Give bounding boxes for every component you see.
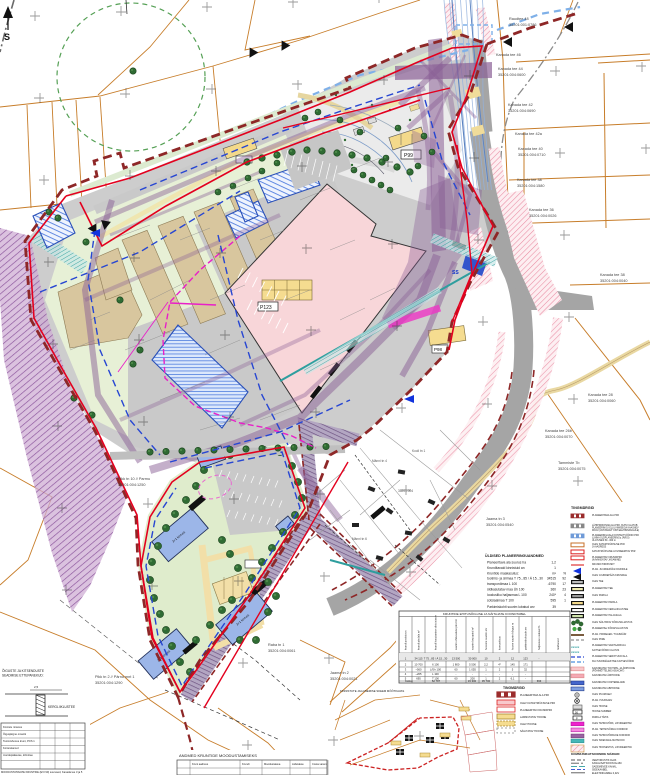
svg-text:123: 123 <box>523 657 528 661</box>
svg-text:KAVANDATAV ABIHOONE: KAVANDATAV ABIHOONE <box>592 687 620 690</box>
svg-text:35201:004:0540: 35201:004:0540 <box>486 523 513 527</box>
svg-text:loodusliku haljasmaa L 100: loodusliku haljasmaa L 100 <box>487 593 527 597</box>
svg-text:PLANEERITAV KERGLIIKLUSTEE: PLANEERITAV KERGLIIKLUSTEE <box>592 608 629 611</box>
svg-text:PLANEERITAV HALJASALA: PLANEERITAV HALJASALA <box>592 614 622 617</box>
svg-text:xxxxx: xxxxx <box>571 650 580 654</box>
svg-text:1,2: 1,2 <box>551 561 556 565</box>
svg-text:145: 145 <box>510 663 515 667</box>
svg-text:35201:004:1250: 35201:004:1250 <box>118 483 145 487</box>
svg-text:1: 1 <box>554 566 556 570</box>
svg-text:ÜLDISED PLANEERINGUANDMED: ÜLDISED PLANEERINGUANDMED <box>485 553 544 558</box>
svg-text:92: 92 <box>562 577 566 581</box>
svg-text:PLAN. PUURKAEV: PLAN. PUURKAEV <box>592 699 613 702</box>
svg-text:P98: P98 <box>434 347 443 352</box>
svg-text:Pikk tn 2 // Pärnu mnt 1: Pikk tn 2 // Pärnu mnt 1 <box>95 675 134 679</box>
svg-text:695: 695 <box>416 677 421 681</box>
svg-text:Costa varem: Costa varem <box>312 762 327 766</box>
svg-text:PLAN. TEHNOVÕRGU KORIDOR: PLAN. TEHNOVÕRGU KORIDOR <box>592 728 628 731</box>
svg-text:KRUNDI PIIRIPUNKT: KRUNDI PIIRIPUNKT <box>592 564 615 566</box>
svg-text:PLANEERITAV KRUNDIPIIR: PLANEERITAV KRUNDIPIIR <box>592 556 622 559</box>
svg-text:PLANEERITAV KRUNDIPIIR: PLANEERITAV KRUNDIPIIR <box>520 709 552 712</box>
svg-text:4*: 4* <box>498 663 501 667</box>
svg-text:34 115: 34 115 <box>414 657 423 661</box>
svg-text:Kanada tee 36: Kanada tee 36 <box>529 208 554 212</box>
svg-text:35201:004:1290: 35201:004:1290 <box>95 681 122 685</box>
svg-text:PLANEERINGU ELLUVIIMISEGA KAAS: PLANEERINGU ELLUVIIMISEGA KAASNEV <box>592 526 639 529</box>
svg-text:10: 10 <box>485 657 488 661</box>
svg-text:OLEV SÄILITATAV KÕRGHALJASTUS: OLEV SÄILITATAV KÕRGHALJASTUS <box>592 621 633 624</box>
svg-text:Männi tn 4: Männi tn 4 <box>372 459 387 463</box>
svg-text:KOMMUNIKATSIOONIDE MÄRGID:: KOMMUNIKATSIOONIDE MÄRGID: <box>571 752 620 756</box>
svg-text:Kanada tee 44: Kanada tee 44 <box>498 67 523 71</box>
svg-text:PLANEERITAV PARKLA: PLANEERITAV PARKLA <box>592 601 618 604</box>
svg-text:LAMMUTATAV HOONE: LAMMUTATAV HOONE <box>520 716 547 719</box>
svg-text:(KAVANDATAV JAGAMINE): (KAVANDATAV JAGAMINE) <box>592 558 621 561</box>
svg-text:OLEV SIDEKANALISATSIOON: OLEV SIDEKANALISATSIOON <box>592 739 625 742</box>
svg-text:Jaama tn 2: Jaama tn 2 <box>330 671 349 675</box>
svg-text:595: 595 <box>550 598 556 602</box>
svg-text:%: % <box>563 571 566 575</box>
svg-text:35201:004:0070: 35201:004:0070 <box>545 435 572 439</box>
svg-text:-: - <box>525 673 526 676</box>
svg-text:Kanada tee 46: Kanada tee 46 <box>496 53 521 57</box>
svg-text:L 100: L 100 <box>432 672 439 676</box>
svg-text:sotsiaalmaa T 100: sotsiaalmaa T 100 <box>487 598 514 602</box>
svg-text:60: 60 <box>455 668 458 672</box>
svg-text:693: 693 <box>537 679 542 683</box>
svg-text:SEADMISE ETTEPANEKUD:: SEADMISE ETTEPANEKUD: <box>2 674 44 678</box>
svg-text:hoonete suurim arv: hoonete suurim arv <box>484 627 488 650</box>
svg-text:Männi tn 6: Männi tn 6 <box>352 537 367 541</box>
svg-text:suurim brutopind m²: suurim brutopind m² <box>471 627 475 650</box>
svg-text:-: - <box>525 678 526 681</box>
svg-text:hoone suurim kõrgus m: hoone suurim kõrgus m <box>511 623 515 650</box>
svg-text:krundi pindala m²: krundi pindala m² <box>417 630 421 650</box>
svg-text:Krundi: Krundi <box>242 762 250 766</box>
svg-text:Jaama tn 3: Jaama tn 3 <box>486 517 505 521</box>
svg-text:OLEV KATASTRIÜKSUSE PIIR: OLEV KATASTRIÜKSUSE PIIR <box>520 702 555 705</box>
svg-text:Planeeritava ala suurus ha: Planeeritava ala suurus ha <box>487 561 526 565</box>
svg-text:KERGLIIKLUSTEE: KERGLIIKLUSTEE <box>48 705 75 709</box>
svg-text:35201:004:0690: 35201:004:0690 <box>508 109 535 113</box>
svg-text:KAITSEVÖÖNDI ULATUS: KAITSEVÖÖNDI ULATUS <box>592 649 620 652</box>
svg-text:KAVANDATAV TOOTMIS- JA ÄRIHOON: KAVANDATAV TOOTMIS- JA ÄRIHOONE <box>592 667 635 670</box>
svg-text:360: 360 <box>550 588 556 592</box>
svg-text:10 700: 10 700 <box>414 663 423 667</box>
svg-text:PLANEERITAV SANITAARKUJA: PLANEERITAV SANITAARKUJA <box>592 644 626 647</box>
svg-text:krundi kasutamise sihtotstarve: krundi kasutamise sihtotstarve <box>434 615 438 650</box>
svg-text:Tammiste 7b: Tammiste 7b <box>558 461 580 465</box>
svg-text:OLEV TEE: OLEV TEE <box>592 581 604 583</box>
svg-text:-: - <box>539 658 540 661</box>
svg-text:32: 32 <box>524 668 527 672</box>
svg-text:-: - <box>512 673 513 676</box>
svg-text:Kanada tee 38: Kanada tee 38 <box>517 178 542 182</box>
svg-text:ULATUSES 50...300 m: ULATUSES 50...300 m <box>592 539 616 542</box>
svg-text:Kanada tee 40: Kanada tee 40 <box>518 147 543 151</box>
svg-text:OLEV PUURKAEV: OLEV PUURKAEV <box>592 693 612 696</box>
svg-text:xxxxx: xxxxx <box>571 645 580 649</box>
svg-text:1: 1 <box>564 598 566 602</box>
svg-text:12: 12 <box>511 657 514 661</box>
svg-text:Pikk tn 10 // Parmu: Pikk tn 10 // Parmu <box>118 477 150 481</box>
svg-text:-: - <box>472 673 473 676</box>
svg-text:PLANEERINGUALA KONTAKTVÖÖNDI P: PLANEERINGUALA KONTAKTVÖÖNDI PIIR <box>592 534 639 537</box>
svg-text:PLAN. PIIRDEAED / TUGIMÜÜR: PLAN. PIIRDEAED / TUGIMÜÜR <box>592 633 627 636</box>
svg-text:Kooli tn 1: Kooli tn 1 <box>412 449 426 453</box>
svg-text:T 75...85 / Ä 15...30: T 75...85 / Ä 15...30 <box>424 657 448 661</box>
svg-text:35201:004:0040: 35201:004:0040 <box>600 279 627 283</box>
svg-text:Kanada tee 42: Kanada tee 42 <box>508 103 533 107</box>
svg-text:1 800: 1 800 <box>453 663 460 667</box>
svg-text:35201:004: 35201:004 <box>398 489 413 493</box>
svg-text:SÄILITATAV HOONE: SÄILITATAV HOONE <box>520 730 544 733</box>
svg-text:2,2: 2,2 <box>484 663 488 667</box>
svg-text:-: - <box>456 673 457 676</box>
svg-text:-: - <box>499 673 500 676</box>
svg-text:OLEV HOONE: OLEV HOONE <box>592 706 608 708</box>
svg-text:haljastuse osakaal %: haljastuse osakaal % <box>537 625 541 650</box>
svg-text:35201:004:0061: 35201:004:0061 <box>268 649 295 653</box>
svg-text:35201:004:0075: 35201:004:0075 <box>558 467 585 471</box>
svg-text:Parkimiskohti suurim lubatud a: Parkimiskohti suurim lubatud arv <box>487 605 535 609</box>
svg-text:S: S <box>4 32 10 42</box>
svg-text:KAVANDATAV KORTERELAMU: KAVANDATAV KORTERELAMU <box>592 681 625 684</box>
svg-text:52 787: 52 787 <box>432 679 441 683</box>
svg-text:KATASTRIÜKSUSE LIKVIDEERITAV P: KATASTRIÜKSUSE LIKVIDEERITAV PIIR <box>592 550 636 553</box>
svg-text:35201:004:0021: 35201:004:0021 <box>330 677 357 681</box>
svg-text:Kanada tee 38: Kanada tee 38 <box>600 273 625 277</box>
svg-text:KULTUURIMÄLESTISE KAITSEVÖÖND: KULTUURIMÄLESTISE KAITSEVÖÖND <box>592 660 634 663</box>
svg-text:34515: 34515 <box>547 577 556 581</box>
svg-text:60: 60 <box>455 677 458 681</box>
svg-text:PARKLA TÄHIS: PARKLA TÄHIS <box>592 716 609 719</box>
svg-text:OLEV KATASTRIÜKSUSE PIIR: OLEV KATASTRIÜKSUSE PIIR <box>592 543 625 546</box>
svg-text:L/Üh 100: L/Üh 100 <box>430 668 441 672</box>
svg-text:KINNISTUTE JAGUNEMISE SKEEM MÕ: KINNISTUTE JAGUNEMISE SKEEM MÕÕTKAVAS <box>340 688 404 693</box>
svg-text:suurim ehitusalune pind m²: suurim ehitusalune pind m² <box>454 619 458 650</box>
svg-text:Liidetakse: Liidetakse <box>292 762 304 766</box>
svg-text:Tootmishoone krunt, POS 1: Tootmishoone krunt, POS 1 <box>3 739 35 743</box>
svg-text:PLANEERITAV TEE: PLANEERITAV TEE <box>592 587 613 590</box>
svg-text:5 500: 5 500 <box>469 663 476 667</box>
svg-text:171: 171 <box>523 663 528 667</box>
svg-text:(LINNA ÜLDPLANEERINGu JÄRGI): (LINNA ÜLDPLANEERINGu JÄRGI) <box>592 536 630 539</box>
svg-text:15 300: 15 300 <box>468 679 477 683</box>
svg-text:240*: 240* <box>549 593 557 597</box>
svg-text:23: 23 <box>562 588 566 592</box>
svg-text:Krunt aadress: Krunt aadress <box>192 762 209 766</box>
svg-text:OLEV TEHNOVÕRKUDE KORIDOR: OLEV TEHNOVÕRKUDE KORIDOR <box>592 734 630 737</box>
svg-text:OLEV PARKLA: OLEV PARKLA <box>592 594 608 597</box>
svg-text:~205: ~205 <box>415 672 422 676</box>
svg-text:korruselisus: korruselisus <box>498 635 502 650</box>
svg-text:JA AADRESS: JA AADRESS <box>592 545 607 548</box>
svg-text:PLANEERITAV SERVITUUDI ALA: PLANEERITAV SERVITUUDI ALA <box>592 655 628 658</box>
svg-text:MÕJU (VASTAVALT KSH EELHINNANG: MÕJU (VASTAVALT KSH EELHINNANGULE) <box>592 529 639 532</box>
svg-text:Kinnistu nimetus: Kinnistu nimetus <box>3 725 23 729</box>
svg-text:30 000: 30 000 <box>468 657 477 661</box>
svg-text:PLAN. JUURDEPÄÄS KRUNDILE: PLAN. JUURDEPÄÄS KRUNDILE <box>592 568 628 571</box>
svg-text:35201:004:1580: 35201:004:1580 <box>517 184 544 188</box>
svg-text:HOONE NUMBER: HOONE NUMBER <box>592 711 612 713</box>
svg-text:35201:004:0600: 35201:004:0600 <box>498 73 525 77</box>
svg-text:P: P <box>576 716 578 720</box>
svg-text:4: 4 <box>564 593 566 597</box>
svg-text:35 700: 35 700 <box>482 679 491 683</box>
svg-text:märkused: märkused <box>556 638 560 650</box>
svg-text:13 500: 13 500 <box>452 657 461 661</box>
svg-text:TINGMÄRGID: TINGMÄRGID <box>571 506 595 510</box>
svg-text:OLEV PIIRE: OLEV PIIRE <box>592 639 605 641</box>
svg-text:parkimiskohtade arv: parkimiskohtade arv <box>524 626 528 650</box>
svg-text:Raudtee 48: Raudtee 48 <box>509 17 529 21</box>
svg-text:tootmis- ja ärimaa T 75...85 /: tootmis- ja ärimaa T 75...85 / Ä 15...30 <box>487 577 543 581</box>
svg-text:transpordimaa L 100: transpordimaa L 100 <box>487 582 517 586</box>
svg-text:LÄHIPIIRKONNA ALA PIIR, KUHU U: LÄHIPIIRKONNA ALA PIIR, KUHU ULATUB <box>592 524 638 527</box>
svg-text:PLANEERITAVA ALA PIIR: PLANEERITAVA ALA PIIR <box>592 514 619 517</box>
svg-text:OLEV TEHNOVÕRK, LIKVIDEERITAV: OLEV TEHNOVÕRK, LIKVIDEERITAV <box>592 722 632 725</box>
svg-text:17: 17 <box>562 582 566 586</box>
svg-text:6,1: 6,1 <box>511 677 515 681</box>
svg-text:üldkasutatav maa Üh 100: üldkasutatav maa Üh 100 <box>487 588 525 592</box>
svg-text:6 100: 6 100 <box>432 663 439 667</box>
svg-text:krundi positsioon: krundi positsioon <box>404 630 408 650</box>
svg-text:OLEV HOONESTUS, LIKVIDEERITAV: OLEV HOONESTUS, LIKVIDEERITAV <box>592 746 632 749</box>
svg-text:Juurdepääsutee, kõnnitee: Juurdepääsutee, kõnnitee <box>3 753 33 757</box>
svg-text:Kruntide maakasutus:: Kruntide maakasutus: <box>487 571 519 575</box>
svg-text:MOODUSTATAVATE KRUNTIDE (EVI 9: MOODUSTATAVATE KRUNTIDE (EVI 90) suuruse… <box>1 770 83 774</box>
svg-text:KAVANDATAV ÄRIHOONE: KAVANDATAV ÄRIHOONE <box>592 674 620 677</box>
svg-text:KRUNTIDE EHITUSÕIGUSE JA NÄITA: KRUNTIDE EHITUSÕIGUSE JA NÄITAJATE KOOND… <box>443 611 526 616</box>
svg-text:Moodustatava: Moodustatava <box>264 762 281 766</box>
svg-text:TINGMÄRGID: TINGMÄRGID <box>503 686 525 690</box>
svg-text:Kanada tee 42a: Kanada tee 42a <box>515 132 543 136</box>
svg-text:Krunditavaid kinnistuid an: Krunditavaid kinnistuid an <box>487 566 525 570</box>
svg-text:P99: P99 <box>404 153 413 159</box>
svg-text:OLEV JUURDEPÄÄS KRUNDILE: OLEV JUURDEPÄÄS KRUNDILE <box>592 574 627 577</box>
svg-text:(PÕHIMÕTTELINE ASUKOHT): (PÕHIMÕTTELINE ASUKOHT) <box>592 669 625 672</box>
svg-text:1 055: 1 055 <box>469 668 476 672</box>
svg-text:-6790: -6790 <box>548 582 557 586</box>
svg-text:-: - <box>486 673 487 676</box>
svg-text:Kanada tee 28: Kanada tee 28 <box>588 393 613 397</box>
svg-text:35201:004:0710: 35201:004:0710 <box>518 153 545 157</box>
svg-text:PLANEERITAVA ALA PIIR: PLANEERITAVA ALA PIIR <box>520 694 549 697</box>
svg-text:35201:004:0060: 35201:004:0060 <box>588 399 615 403</box>
svg-text:2,5: 2,5 <box>34 685 39 689</box>
svg-text:39: 39 <box>552 605 556 609</box>
svg-text:ANDMED KRUNTIDE MOODUSTAMISEKS: ANDMED KRUNTIDE MOODUSTAMISEKS <box>179 753 257 758</box>
svg-text:35201:004:0026: 35201:004:0026 <box>529 214 556 218</box>
svg-text:OLEV HOONE: OLEV HOONE <box>520 723 537 726</box>
svg-text:Kokku: Kokku <box>405 679 413 683</box>
svg-text:35201:001:0786: 35201:001:0786 <box>509 23 536 27</box>
svg-text:Kanada tee 26b: Kanada tee 26b <box>545 429 572 433</box>
svg-text:Raba tn 1: Raba tn 1 <box>268 643 284 647</box>
svg-text:ÕIGUSTE JA KITSENDUSTE: ÕIGUSTE JA KITSENDUSTE <box>2 668 44 673</box>
svg-text:Korterelamud: Korterelamud <box>3 746 19 750</box>
svg-text:~560: ~560 <box>415 668 422 672</box>
svg-text:SS: SS <box>452 270 459 276</box>
svg-text:PLANEERITav KÕRGHALJASTUS: PLANEERITav KÕRGHALJASTUS <box>592 627 629 630</box>
